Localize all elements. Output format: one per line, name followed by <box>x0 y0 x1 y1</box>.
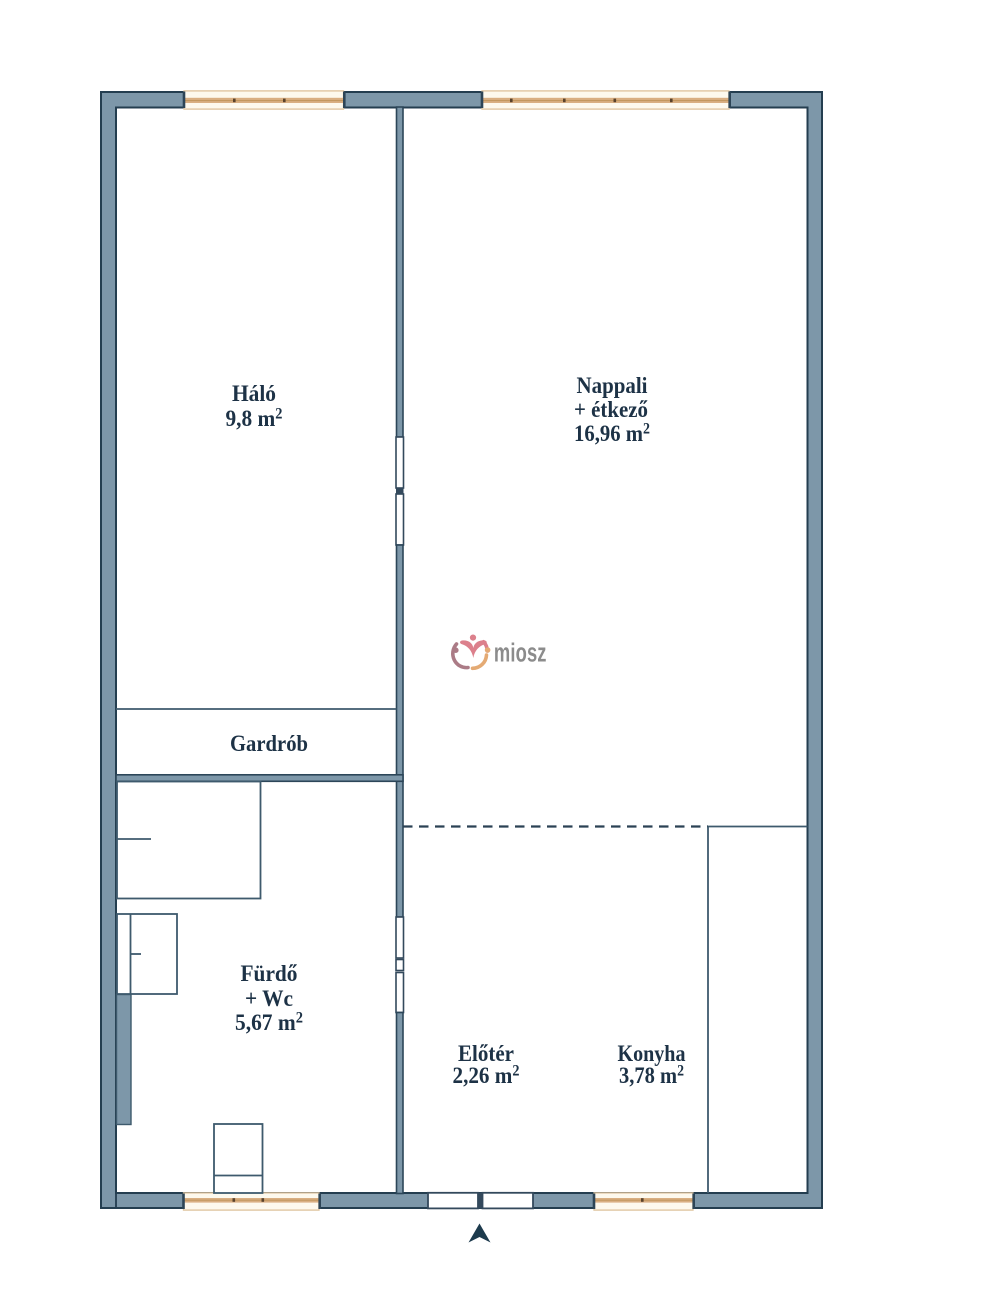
svg-text:Nappali: Nappali <box>577 373 649 398</box>
svg-text:miosz: miosz <box>494 639 547 668</box>
svg-text:+ Wc: + Wc <box>245 986 293 1011</box>
svg-text:Háló: Háló <box>232 381 276 406</box>
svg-text:5,67 m2: 5,67 m2 <box>235 1010 303 1036</box>
svg-text:2,26 m2: 2,26 m2 <box>453 1063 520 1089</box>
svg-text:3,78 m2: 3,78 m2 <box>619 1063 684 1089</box>
svg-text:9,8 m2: 9,8 m2 <box>226 406 283 432</box>
svg-text:Gardrób: Gardrób <box>230 731 308 756</box>
svg-text:Fürdő: Fürdő <box>241 961 298 986</box>
svg-text:16,96 m2: 16,96 m2 <box>574 421 650 447</box>
svg-text:+ étkező: + étkező <box>574 397 648 422</box>
